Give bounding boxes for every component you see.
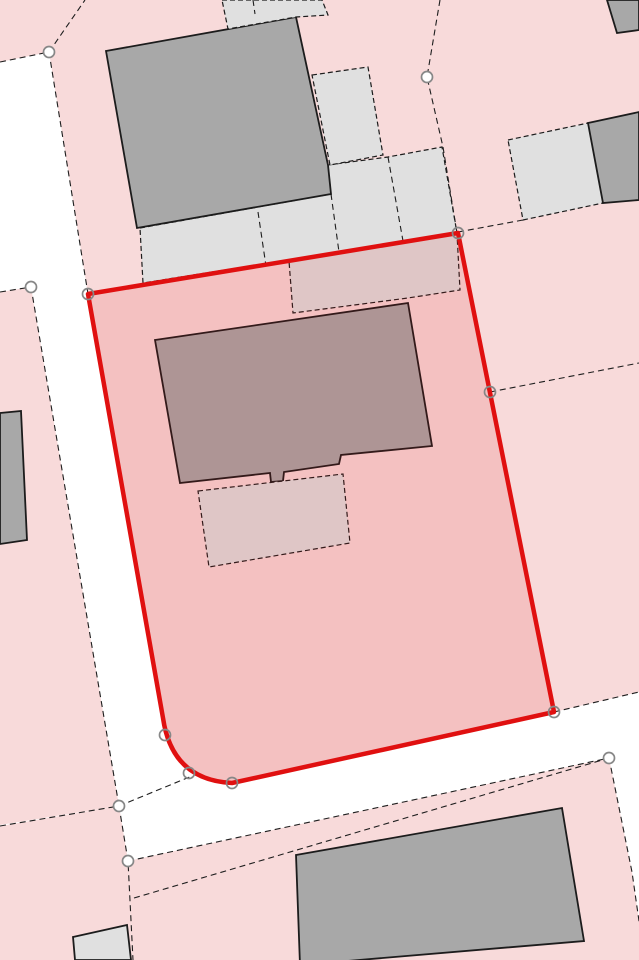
vertex-marker[interactable] [123,856,134,867]
vertex-marker[interactable] [422,72,433,83]
vertex-marker[interactable] [26,282,37,293]
building-north[interactable] [106,17,331,228]
yard-mid-right[interactable] [508,123,603,220]
vertex-marker[interactable] [44,47,55,58]
map-viewport[interactable] [0,0,639,960]
vertex-marker[interactable] [114,801,125,812]
cadastral-map[interactable] [0,0,639,960]
vertex-marker[interactable] [604,753,615,764]
